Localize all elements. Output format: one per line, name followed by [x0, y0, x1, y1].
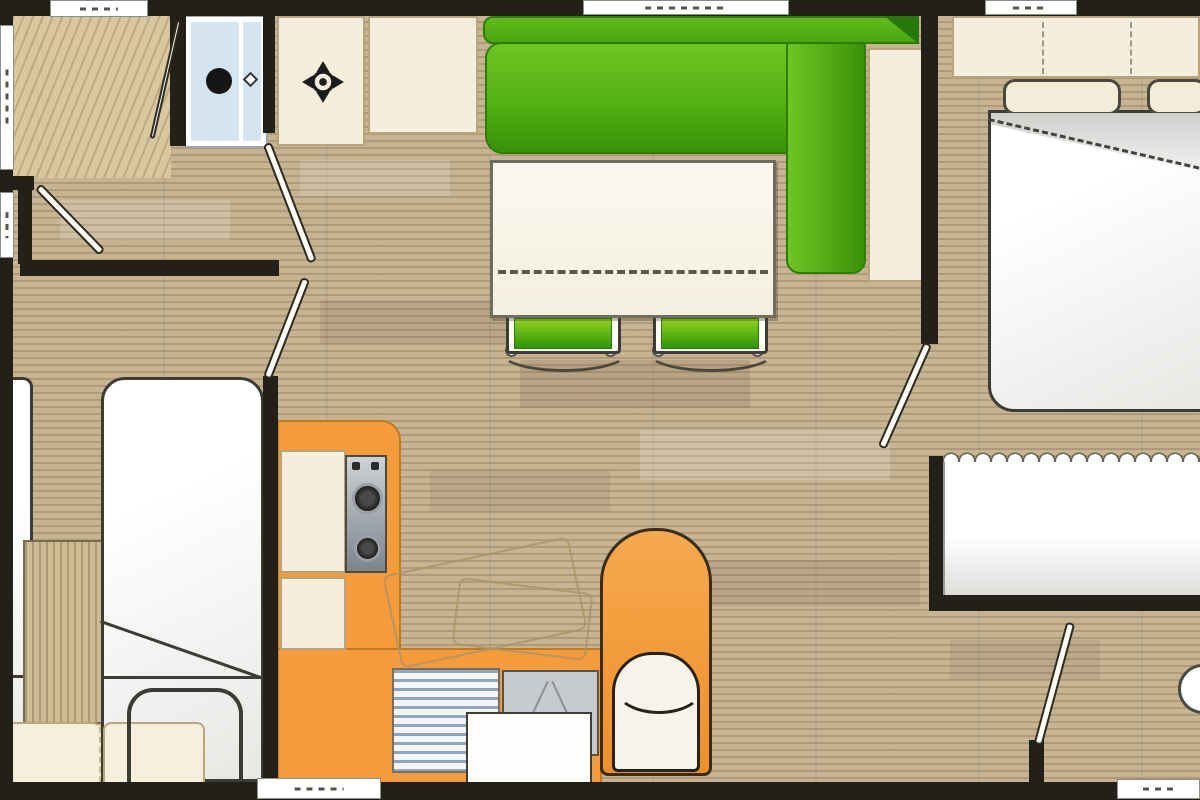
wall-bedroom-left-top — [20, 260, 279, 276]
kitchen-cabinet — [280, 577, 346, 650]
wall-living-bedroom-right — [921, 0, 938, 344]
hob-knob — [352, 462, 360, 470]
hob-knob — [371, 462, 379, 470]
kitchen-cabinet — [280, 450, 346, 573]
bedside-wood-unit — [23, 540, 103, 724]
sideboard — [868, 48, 926, 282]
shower-handle-icon — [243, 72, 259, 88]
headboard-divider — [1042, 22, 1044, 74]
bathroom-floor — [13, 16, 171, 178]
wall-closet-left — [929, 456, 943, 608]
floor-plank-highlight — [300, 160, 450, 196]
worktop-block — [466, 712, 592, 792]
burner-small — [354, 535, 381, 562]
wall-shower-right — [263, 16, 275, 133]
wardrobe-scallop-edge — [943, 448, 1200, 462]
window-living — [583, 0, 789, 15]
pillow — [1003, 79, 1121, 115]
window-bedroom-right — [985, 0, 1077, 15]
faucet-icon — [301, 60, 345, 104]
wall-closet-bottom — [929, 595, 1200, 611]
wall-bottom — [0, 782, 1200, 800]
window-top-left — [50, 0, 148, 17]
headboard-divider — [1130, 22, 1132, 74]
burner-large — [352, 483, 383, 514]
sofa-seat-return — [786, 42, 866, 274]
pillow — [1147, 79, 1200, 115]
chair-cushion — [661, 318, 759, 349]
window-left-upper — [0, 25, 14, 170]
chair-cushion — [514, 318, 612, 349]
vanity-unit — [277, 16, 365, 146]
wall-bedroom-kitchen — [263, 376, 278, 782]
shower-glass-door — [239, 22, 243, 141]
floor-plan — [0, 0, 1200, 800]
wall-hall-left — [18, 186, 32, 264]
dining-table — [490, 160, 776, 318]
sofa-backrest — [483, 16, 919, 44]
wardrobe — [943, 460, 1200, 597]
shower-drain-icon — [206, 68, 232, 94]
wall-stub-rear-door — [1029, 740, 1044, 784]
window-left-lower — [0, 192, 14, 258]
gas-hob — [345, 455, 387, 573]
floor-plank-shade — [950, 640, 1100, 680]
floor-plank-shade — [430, 470, 610, 512]
blanket-fold-line — [101, 676, 264, 679]
window-bottom-right — [1117, 779, 1200, 799]
headboard-cabinet — [952, 16, 1200, 78]
floor-plank-shade — [700, 560, 920, 606]
shower-cubicle — [186, 17, 266, 146]
bathroom-cabinet — [368, 16, 478, 134]
entrance-door-bottom — [257, 778, 381, 799]
floor-plank-highlight — [640, 430, 890, 480]
table-fold-dashes — [498, 270, 768, 274]
cushion-seam-arc — [614, 660, 704, 714]
